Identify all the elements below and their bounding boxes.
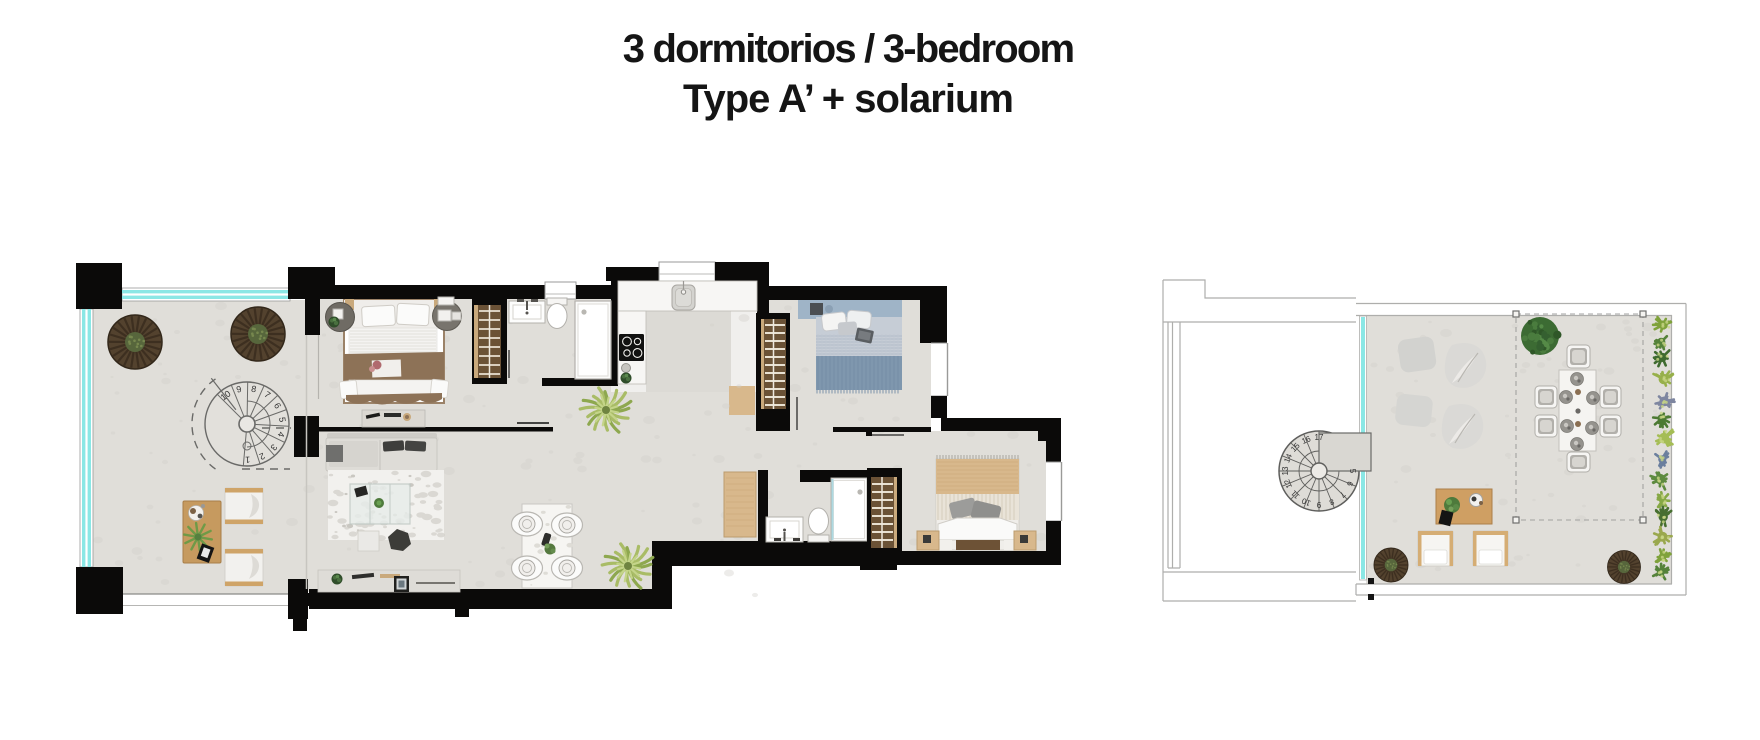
svg-text:3 dormitorios / 3-bedroom: 3 dormitorios / 3-bedroom: [623, 27, 1074, 71]
svg-text:13: 13: [1281, 466, 1290, 475]
svg-text:9: 9: [1316, 500, 1321, 509]
svg-text:Type A’ + solarium: Type A’ + solarium: [683, 77, 1013, 121]
svg-text:17: 17: [1315, 433, 1324, 442]
svg-text:5: 5: [1348, 469, 1357, 474]
svg-text:1: 1: [245, 455, 250, 465]
